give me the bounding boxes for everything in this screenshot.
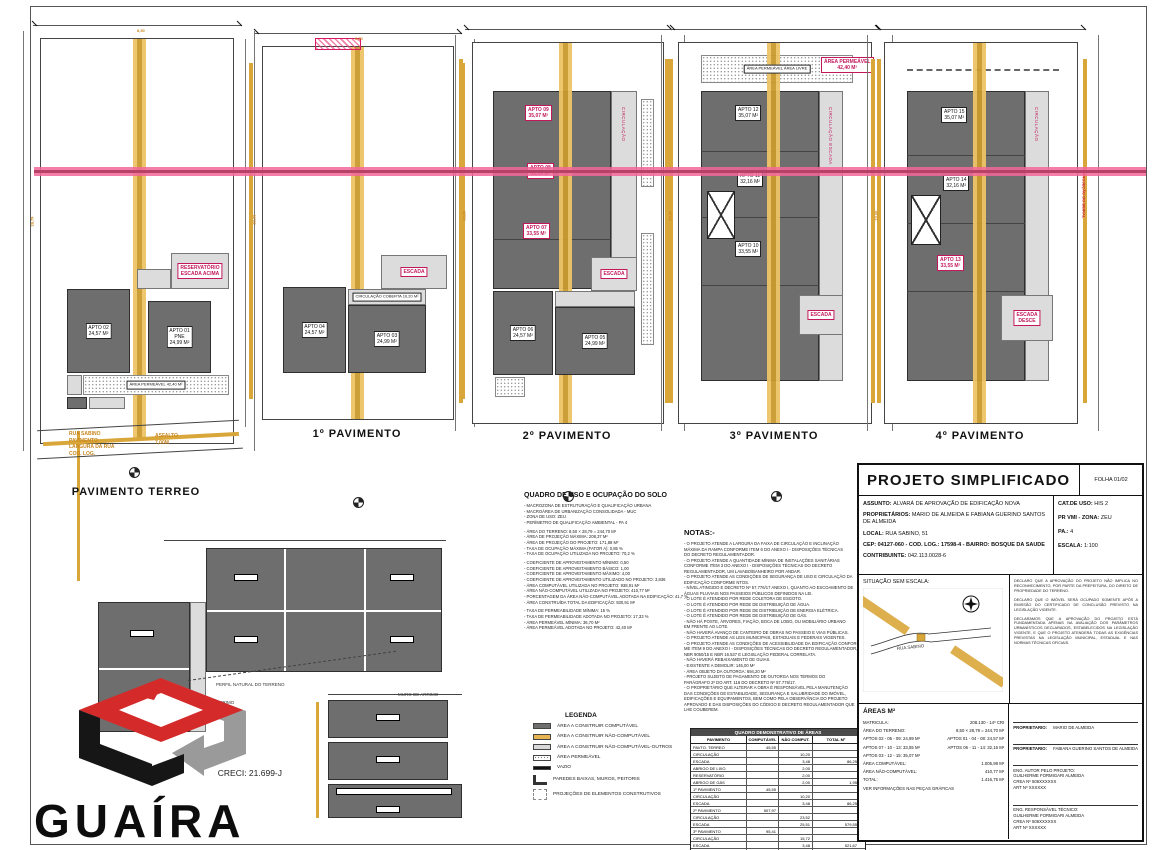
table-row: CIRCULAÇÃO23,52 — [691, 814, 865, 821]
hatch-area — [495, 377, 525, 397]
wbox-area — [376, 714, 400, 721]
lineh-area — [328, 694, 462, 695]
legend-item: VAZIO — [533, 765, 703, 770]
lineh-area — [907, 291, 1025, 292]
wlineh-area — [207, 610, 441, 612]
col-computavel: COMPUTÁVEL — [747, 736, 779, 743]
legend-item: ÁREA PERMEÁVEL — [533, 755, 703, 761]
table-row: ESCADA3,4886,25 — [691, 800, 865, 807]
areas-table: QUADRO DEMONSTRATIVO DE ÁREAS PAVIMENTO … — [690, 728, 866, 850]
room-label: APTO 0324,99 M² — [374, 331, 400, 347]
goldv-area — [1083, 59, 1087, 403]
room-label: APTO 1432,16 M² — [943, 175, 969, 191]
dimension-line-left — [661, 35, 662, 431]
goldv-area — [316, 702, 319, 818]
goldv-area — [669, 59, 673, 403]
guaira-wordmark: GUAÍRA — [34, 798, 245, 844]
plan-4-pavimento: CIRCULAÇÃOAPTO 1535,07 M²APTO 1432,16 M²… — [884, 42, 1078, 424]
legend-item: ÁREA A CONSTRUIR NÃO-COMPUTÁVEL — [533, 734, 703, 740]
table-row: PAVTO. TERREO45,55 — [691, 744, 865, 751]
red-room-label: ESCADA — [400, 267, 427, 277]
table-row: 1º PAVIMENTO45,55 — [691, 786, 865, 793]
black-swatch — [533, 766, 551, 770]
side-info-row: ESCALA: 1:100 — [1058, 543, 1138, 549]
circulation-label: CIRCULAÇÃO ESCADA — [828, 107, 833, 165]
areas-table-rows: PAVTO. TERREO45,55CIRCULAÇÃO10,20ESCADA3… — [691, 744, 865, 850]
nota-line: LHE COUBEREM. — [684, 707, 864, 713]
dimension-line-right — [254, 31, 255, 451]
lineh-area — [701, 285, 819, 286]
project-info: ASSUNTO: ALVARÁ DE APROVAÇÃO DE EDIFICAÇ… — [859, 496, 1053, 574]
north-marker — [353, 497, 364, 508]
red-room-label: ESCADA — [807, 310, 834, 320]
legend-label: PAREDES BAIXAS, MUROS, PEITORIS — [553, 777, 640, 782]
legend-label: ÁREA A CONSTRUIR COMPUTÁVEL — [557, 724, 638, 729]
circulation-label: CIRCULAÇÃO — [1034, 107, 1039, 142]
legend-label: ÁREA A CONSTRUIR NÃO-COMPUTÁVEL-OUTROS — [557, 745, 672, 750]
dimension-line-top — [33, 25, 241, 26]
dashed-swatch — [533, 789, 547, 800]
annotation-text: 8,50 — [355, 36, 363, 41]
plan-1-pavimento: APTO 0424,57 M²APTO 0324,99 M²CIRCULAÇÃO… — [262, 46, 454, 420]
yellow-area — [767, 43, 780, 423]
dimension-line-left — [23, 31, 24, 451]
lineh-area — [164, 540, 446, 541]
lineh-area — [701, 151, 819, 152]
project-title: PROJETO SIMPLIFICADO — [859, 465, 1079, 495]
areas-table-title: QUADRO DEMONSTRATIVO DE ÁREAS — [691, 729, 865, 736]
annotation-text: 8,50 — [137, 28, 145, 33]
nota-line: - O PROJETO ATENDE AS CONDIÇÕES DE SEGUR… — [684, 574, 864, 580]
dimension-line-left — [867, 35, 868, 431]
table-row: ESCADA25,51579,55 — [691, 821, 865, 828]
annotation-text: 28,79 — [29, 217, 34, 227]
areas-line: VER INFORMAÇÕES NAS PEÇAS GRÁFICAS — [863, 786, 1004, 791]
legend-item: ÁREA A CONSTRUIR NÃO-COMPUTÁVEL-OUTROS — [533, 744, 703, 750]
hatch-swatch — [533, 755, 551, 761]
nota-line: - O PROJETO ATENDE A LARGURA DA FAIXA DE… — [684, 541, 864, 547]
lineh-area — [493, 239, 611, 240]
red-room-label: ESCADA — [600, 269, 627, 279]
areas-line: APTOS 07 - 10 - 13: 33,55 M²APTOS 06 - 1… — [863, 745, 1004, 750]
areas-m2-lines: MATRICULA:208.130 - 14º CRIÁREA DO TERRE… — [863, 720, 1004, 791]
annotation-text: 23,00 — [667, 211, 672, 221]
legend-label: PROJEÇÕES DE ELEMENTOS CONSTRUTIVOS — [553, 792, 661, 797]
table-row: CIRCULAÇÃO10,20 — [691, 751, 865, 758]
dimension-line-top — [671, 29, 879, 30]
room-label: APTO 1235,07 M² — [735, 105, 761, 121]
quadro-uso-line: - ÁREA PERMEÁVEL ADOTADA NO PROJETO: 42,… — [524, 625, 700, 631]
side-info-row: PR VMI - ZONA: ZEU — [1058, 515, 1138, 521]
info-row: ASSUNTO: ALVARÁ DE APROVAÇÃO DE EDIFICAÇ… — [863, 501, 1049, 508]
wbox-area — [234, 636, 258, 643]
room-label: CIRCULAÇÃO COBERTA 10,20 M² — [353, 293, 422, 302]
light-area — [555, 291, 635, 307]
dimension-line-left — [455, 35, 456, 431]
signature-block: ENG. RESPONSÁVEL TÉCNICO:GUILHERME FORMI… — [1013, 805, 1138, 831]
areas-m2-title: ÁREAS M² — [863, 708, 1004, 715]
lineh-area — [37, 448, 243, 460]
room-label: APTO 0524,99 M² — [582, 333, 608, 349]
plan-title: 2º PAVIMENTO — [523, 430, 612, 442]
red-room-label: ESCADADESCE — [1013, 310, 1040, 326]
table-row: ABRIGO DE LIXO2,00 — [691, 765, 865, 772]
declaracoes: DECLARO QUE A APROVAÇÃO DO PROJETO NÃO I… — [1009, 575, 1142, 703]
room-label: APTO 1535,07 M² — [941, 107, 967, 123]
light-area — [137, 269, 171, 289]
goldv-area — [459, 59, 463, 403]
annotation-text: RUA SABINOPAVIMENTOLARGURA DA RUACOD. LO… — [69, 431, 114, 457]
annotation-text: 23,00 — [873, 211, 878, 221]
goldv-area — [877, 59, 881, 403]
annotation-text: PROJEÇÃO DO BEIRAL — [1081, 173, 1086, 219]
plan-2-pavimento: CIRCULAÇÃOAPTO 0935,07 M²APTO 0832,16 M²… — [472, 42, 664, 424]
declaracao-paragraph: DECLARO QUE O IMÓVEL SERÁ OCUPADO SOMENT… — [1014, 598, 1138, 613]
lightgray-swatch — [533, 744, 551, 750]
situacao-map: RUA SABINO — [863, 588, 1003, 692]
legend-label: VAZIO — [557, 765, 571, 770]
legenda-block: LEGENDA ÁREA A CONSTRUIR COMPUTÁVELÁREA … — [533, 712, 703, 805]
shaft-area — [911, 195, 941, 245]
info-row: CONTRIBUINTE: 042.113.0028-6 — [863, 553, 1049, 560]
areas-line: MATRICULA:208.130 - 14º CRI — [863, 720, 1004, 725]
compass-rose — [963, 596, 979, 612]
declaracao-paragraph: DECLARAMOS QUE A APROVAÇÃO DO PROJETO ES… — [1014, 617, 1138, 647]
legend-item: ÁREA A CONSTRUIR COMPUTÁVEL — [533, 723, 703, 729]
areas-line: ÁREA NÃO-COMPUTÁVEL:410,77 M² — [863, 769, 1004, 774]
situacao-title: SITUAÇÃO SEM ESCALA: — [863, 579, 1005, 585]
plan-title: PAVIMENTO TERREO — [72, 486, 200, 498]
table-row: RESERVATÓRIO2,00 — [691, 772, 865, 779]
areas-line: ÁREA DO TERRENO:8,50 × 28,79 = 244,70 M² — [863, 728, 1004, 733]
col-pavimento: PAVIMENTO — [691, 736, 747, 743]
guaira-logo: CRECI: 21.699-J GUAÍRA — [34, 664, 286, 844]
quadro-uso-line: - PORCENTAGEM DA ÁREA NÃO-COMPUTÁVEL ADO… — [524, 594, 700, 600]
dimension-line-top — [255, 33, 461, 34]
legend-label: ÁREA PERMEÁVEL — [557, 755, 600, 760]
room-label: ÁREA PERMEÁVEL 42,40 M² — [127, 381, 186, 390]
plan-title: 1º PAVIMENTO — [313, 428, 402, 440]
dimension-line-top — [877, 29, 1085, 30]
title-block: PROJETO SIMPLIFICADO FOLHA 01/02 ASSUNTO… — [857, 463, 1144, 842]
dark-area — [67, 397, 87, 409]
shaft-area — [707, 191, 735, 239]
declaracao-paragraph: DECLARO QUE A APROVAÇÃO DO PROJETO NÃO I… — [1014, 579, 1138, 594]
red-room-label: APTO 0733,55 M² — [523, 223, 550, 239]
light-area — [89, 397, 125, 409]
circulation-label: CIRCULAÇÃO — [621, 107, 626, 142]
room-label: APTO 0424,57 M² — [301, 322, 327, 338]
plan-title: 4º PAVIMENTO — [936, 430, 1025, 442]
legend-item: PAREDES BAIXAS, MUROS, PEITORIS — [533, 775, 703, 785]
table-row: ABRIGO DE GÁS2,001,95 — [691, 779, 865, 786]
goldv-area — [665, 59, 669, 403]
nota-line: - O PROPRIETÁRIO QUE ALTERAR A OBRA É RE… — [684, 685, 864, 691]
red-room-label: RESERVATÓRIOESCADA ACIMA — [177, 263, 222, 279]
plan-3-pavimento: ÁREA PERMEÁVEL ÁREA LIVRECIRCULAÇÃO ESCA… — [678, 42, 872, 424]
room-label: ÁREA PERMEÁVEL ÁREA LIVRE — [744, 65, 811, 74]
drawing-sheet: APTO 0224,57 M²APTO 01PNE24,99 M²RESERVA… — [0, 0, 1152, 850]
areas-m2-cell: ÁREAS M² MATRICULA:208.130 - 14º CRIÁREA… — [859, 704, 1008, 839]
areas-line: APTOS 03 - 12 - 15: 35,07 M² — [863, 753, 1004, 758]
notas-lines: - O PROJETO ATENDE A LARGURA DA FAIXA DE… — [684, 541, 864, 713]
wbanner-area — [336, 788, 452, 795]
plan-title: 3º PAVIMENTO — [730, 430, 819, 442]
wbox-area — [376, 756, 400, 763]
info-row: LOCAL: RUA SABINO, 51 — [863, 531, 1049, 538]
signature-lines: ENG. RESPONSÁVEL TÉCNICO:GUILHERME FORMI… — [1013, 807, 1138, 830]
annotation-text: 23,00 — [461, 211, 466, 221]
quadro-uso-title: QUADRO DE USO E OCUPAÇÃO DO SOLO — [524, 492, 700, 499]
signature-lines: ENG. AUTOR PELO PROJETO:GUILHERME FORMIG… — [1013, 768, 1138, 791]
areas-line: ÁREA COMPUTÁVEL:1.005,98 M² — [863, 761, 1004, 766]
signature-block: PROPRIETARIO:MARIO DE ALMEIDA — [1013, 722, 1138, 730]
table-row: CIRCULAÇÃO15,72 — [691, 835, 865, 842]
room-label: APTO 1033,55 M² — [735, 241, 761, 257]
areas-line: APTOS 02 - 05 - 09: 24,99 M²APTOS 01 - 0… — [863, 736, 1004, 741]
legend-item: PROJEÇÕES DE ELEMENTOS CONSTRUTIVOS — [533, 789, 703, 800]
quadro-uso-lines: - MACROZONA DE ESTRUTURAÇÃO E QUALIFICAÇ… — [524, 503, 700, 631]
annotation-text: 23,00 — [251, 215, 256, 225]
wbox-area — [390, 636, 414, 643]
goldv-area — [871, 59, 875, 403]
quadro-uso-ocupacao: QUADRO DE USO E OCUPAÇÃO DO SOLO - MACRO… — [524, 492, 700, 631]
dimension-line-left — [245, 39, 246, 427]
room-label: APTO 01PNE24,99 M² — [166, 326, 192, 348]
legend-label: ÁREA A CONSTRUIR NÃO-COMPUTÁVEL — [557, 734, 650, 739]
signature-block: ENG. AUTOR PELO PROJETO:GUILHERME FORMIG… — [1013, 765, 1138, 791]
red-room-label: APTO 1333,55 M² — [937, 255, 964, 271]
wbox-area — [390, 574, 414, 581]
lineh-area — [907, 155, 1025, 156]
project-side-info: CAT.DE USO: HIS 2PR VMI - ZONA: ZEUPA.: … — [1053, 496, 1142, 574]
dark-swatch — [533, 723, 551, 729]
north-marker — [771, 491, 782, 502]
pink-highlight-core — [34, 170, 1146, 173]
goldv-area — [249, 63, 253, 399]
legenda-title: LEGENDA — [565, 712, 703, 719]
yellow-swatch — [533, 734, 551, 740]
table-row: 3º PAVIMENTO95,41 — [691, 828, 865, 835]
info-row: PROPRIETÁRIOS: MARIO DE ALMEIDA E FABIAN… — [863, 512, 1049, 526]
col-nao-computavel: NÃO COMPUT. — [779, 736, 813, 743]
side-info-row: PA.: 4 — [1058, 529, 1138, 535]
room-label: APTO 0624,57 M² — [510, 325, 536, 341]
north-marker — [129, 467, 140, 478]
areas-table-header: PAVIMENTO COMPUTÁVEL NÃO COMPUT. TOTAL M… — [691, 736, 865, 744]
creci-number: CRECI: 21.699-J — [218, 768, 282, 778]
light-area — [67, 375, 82, 395]
notas-block: NOTAS:- - O PROJETO ATENDE A LARGURA DA … — [684, 528, 864, 713]
info-row: CEP: 04127-060 - COD. LOG.: 17598-4 - BA… — [863, 542, 1049, 549]
section-corte-transversal — [300, 694, 462, 826]
notas-title: NOTAS:- — [684, 528, 864, 537]
wbox-area — [234, 574, 258, 581]
table-row: ESCADA3,4886,25 — [691, 758, 865, 765]
annotation-text: ASFALTO7,00M — [155, 433, 178, 446]
wbox-area — [376, 806, 400, 813]
signatures-cell: PROPRIETARIO:MARIO DE ALMEIDAPROPRIETARI… — [1008, 704, 1142, 839]
col-total: TOTAL M² — [813, 736, 859, 743]
table-row: CIRCULAÇÃO10,20 — [691, 793, 865, 800]
room-label: APTO 0224,57 M² — [85, 323, 111, 339]
yellow-area — [973, 43, 986, 423]
signature-block: PROPRIETARIO:FABIANA GUERINO SANTOS DE A… — [1013, 744, 1138, 752]
lshape-swatch — [533, 775, 547, 785]
red-room-label: ÁREA PERMEÁVEL42,40 M² — [821, 57, 874, 73]
legenda-items: ÁREA A CONSTRUIR COMPUTÁVELÁREA A CONSTR… — [533, 723, 703, 800]
plan-pavimento-terreo: APTO 0224,57 M²APTO 01PNE24,99 M²RESERVA… — [40, 38, 234, 444]
dimension-line-right — [1098, 35, 1099, 431]
table-row: ESCADA3,48521,67 — [691, 842, 865, 849]
areas-line: TOTAL:1.416,75 M² — [863, 777, 1004, 782]
hatch-area — [641, 233, 654, 345]
wbox-area — [130, 630, 154, 637]
red-room-label: APTO 0935,07 M² — [525, 105, 552, 121]
sheet-number: FOLHA 01/02 — [1079, 465, 1142, 495]
table-row: 2º PAVIMENTO507,97 — [691, 807, 865, 814]
situacao-cell: SITUAÇÃO SEM ESCALA: RUA SABINO — [859, 575, 1009, 703]
dimension-line-top — [465, 29, 671, 30]
side-info-row: CAT.DE USO: HIS 2 — [1058, 501, 1138, 507]
